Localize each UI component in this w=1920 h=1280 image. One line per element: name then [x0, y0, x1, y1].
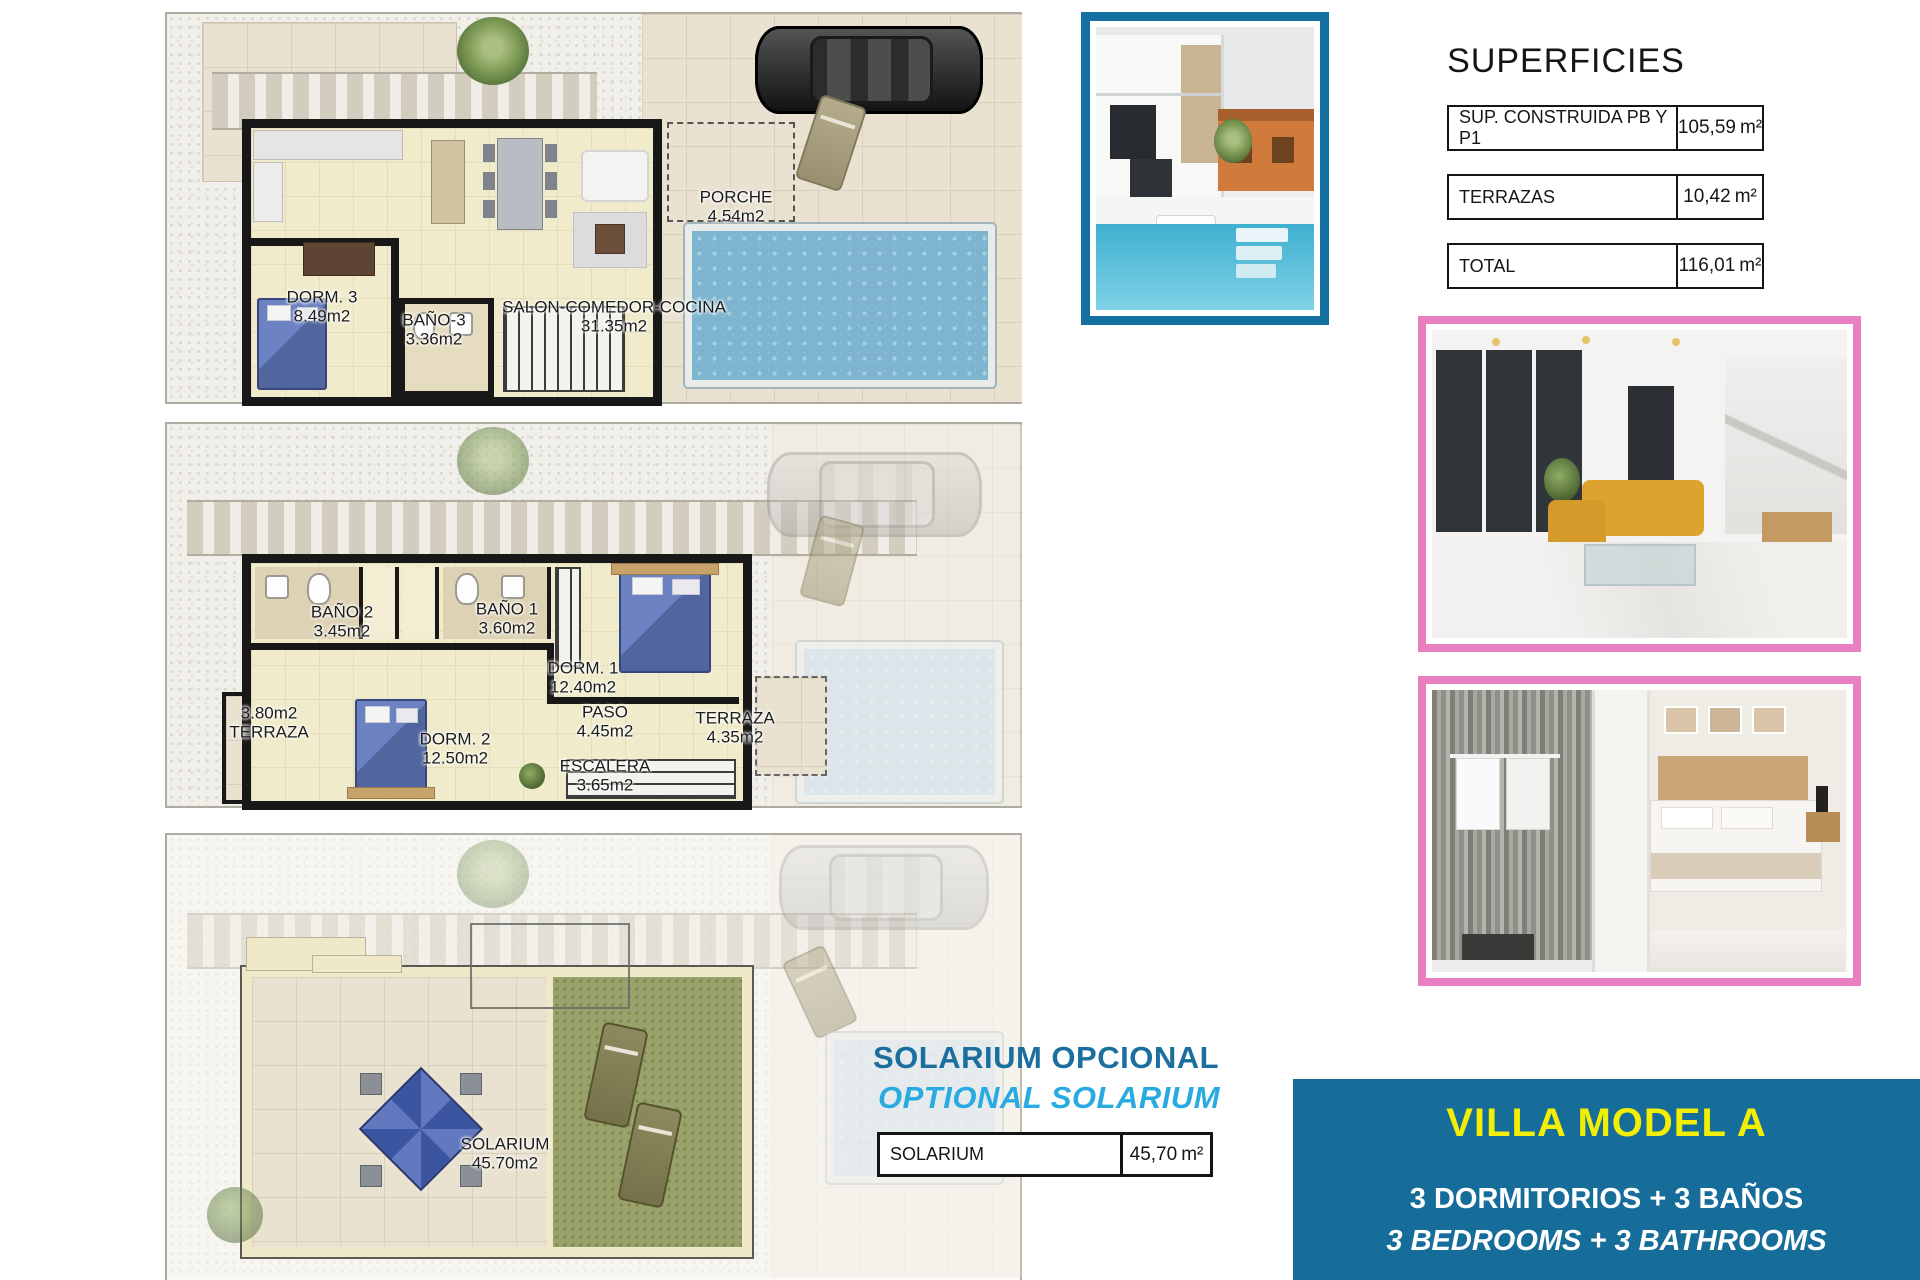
room-area: 8.49m2 [287, 307, 358, 326]
bed-dorm2 [355, 699, 427, 793]
headboard [347, 787, 435, 799]
room-area: 3.80m2 [229, 704, 308, 723]
desk [303, 242, 375, 276]
villa-exterior-photo-content [1096, 27, 1314, 310]
floorplan-first: BAÑO 2 3.45m2 BAÑO 1 3.60m2 DORM. 1 12.4… [165, 422, 1022, 808]
room-name: TERRAZA [229, 723, 308, 742]
superficies-row-construida: SUP. CONSTRUIDA PB Y P1 105,59 m² [1447, 105, 1764, 151]
nightstand [1806, 812, 1840, 842]
dining-chair [483, 200, 495, 218]
sink-icon [501, 575, 525, 599]
ceiling-light [1582, 336, 1590, 344]
room-name: ESCALERA [560, 757, 651, 776]
shower-cell [403, 567, 439, 639]
room-name: TERRAZA [695, 709, 774, 728]
value: 45,70 [1130, 1144, 1178, 1166]
wall-art [1708, 706, 1742, 734]
bed-dorm1 [619, 569, 711, 673]
room-label-porche: PORCHE 4.54m2 [700, 188, 773, 225]
row-label: SUP. CONSTRUIDA PB Y P1 [1449, 107, 1676, 149]
pool-water [1096, 224, 1314, 310]
window [1110, 105, 1156, 159]
room-name: DORM. 3 [287, 288, 358, 307]
bed [1650, 800, 1822, 892]
dining-chair [545, 144, 557, 162]
room-area: 3.45m2 [311, 622, 373, 641]
stair-glass-corner [470, 923, 630, 1009]
car-top-view [755, 26, 983, 114]
palm-tree [457, 427, 529, 495]
room-name: DORM. 2 [420, 730, 491, 749]
pillow [1661, 807, 1713, 829]
lamp [1816, 786, 1828, 812]
row-value: 45,70 m² [1120, 1135, 1210, 1174]
value: 116,01 [1679, 255, 1736, 277]
villa-model-title: VILLA MODEL A [1293, 1101, 1920, 1146]
kitchen-appliances [253, 162, 283, 222]
staircase [1725, 358, 1847, 534]
bathroom-bedroom-photo [1418, 676, 1861, 986]
dining-table [497, 138, 543, 230]
brochure-page: PORCHE 4.54m2 DORM. 3 8.49m2 BAÑO-3 3.36… [0, 0, 1920, 1280]
room-name: BAÑO 1 [476, 600, 538, 619]
floor [1650, 930, 1845, 972]
room-label-bano2: BAÑO 2 3.45m2 [311, 603, 373, 640]
room-area: 31.35m2 [502, 317, 726, 336]
toilet-icon [307, 573, 331, 605]
unit: m² [1739, 255, 1761, 277]
palm-tree [457, 840, 529, 908]
room-name: DORM. 1 [548, 659, 619, 678]
unit: m² [1735, 186, 1757, 208]
house-ground [242, 119, 662, 406]
ceiling-light [1492, 338, 1500, 346]
dining-chair [483, 172, 495, 190]
towel [1506, 758, 1550, 830]
dining-chair [545, 200, 557, 218]
dining-chair [545, 172, 557, 190]
white-villa [1096, 35, 1224, 207]
floor-strip [1432, 960, 1592, 972]
chair [360, 1165, 382, 1187]
ceiling-light [1672, 338, 1680, 346]
room-name: BAÑO-3 [402, 311, 465, 330]
room-area: 45.70m2 [461, 1154, 550, 1173]
villa-model-box: VILLA MODEL A 3 DORMITORIOS + 3 BAÑOS 3 … [1293, 1079, 1920, 1280]
palm-tree [1214, 119, 1252, 163]
room-area: 3.60m2 [476, 619, 538, 638]
superficies-row-terrazas: TERRAZAS 10,42 m² [1447, 174, 1764, 220]
interior-wall [251, 643, 551, 650]
superficies-title: SUPERFICIES [1406, 42, 1726, 81]
room-label-solarium: SOLARIUM 45.70m2 [461, 1135, 550, 1172]
room-label-paso: PASO 4.45m2 [577, 703, 634, 740]
glass-table [1584, 544, 1696, 586]
car-roof [829, 854, 942, 920]
plant [519, 763, 545, 789]
interior-wall [391, 238, 399, 397]
kitchen-counter [253, 130, 403, 160]
superficies-row-total: TOTAL 116,01 m² [1447, 243, 1764, 289]
swimming-pool-faded [797, 642, 1002, 802]
dining-chair [483, 144, 495, 162]
coffee-table [595, 224, 625, 254]
pool-step [1236, 228, 1288, 242]
room-name: SALON-COMEDOR-COCINA [502, 298, 726, 317]
row-label: TOTAL [1449, 245, 1676, 287]
car-top-view [767, 452, 982, 537]
villa-line-en: 3 BEDROOMS + 3 BATHROOMS [1293, 1225, 1920, 1258]
green-roof [547, 977, 742, 1247]
kitchen-island [431, 140, 465, 224]
tile-wall [1432, 690, 1592, 972]
solarium-table-row: SOLARIUM 45,70 m² [877, 1132, 1213, 1177]
room-label-dorm1: DORM. 1 12.40m2 [548, 659, 619, 696]
wall-art [1752, 706, 1786, 734]
row-value: 116,01 m² [1676, 245, 1762, 287]
bath-mat [1462, 934, 1534, 960]
villa-line-es: 3 DORMITORIOS + 3 BAÑOS [1293, 1183, 1920, 1216]
bed-throw [1651, 853, 1821, 879]
room-name: PASO [577, 703, 634, 722]
floorplan-ground: PORCHE 4.54m2 DORM. 3 8.49m2 BAÑO-3 3.36… [165, 12, 1022, 404]
wall-art [1664, 706, 1698, 734]
sofa [581, 150, 649, 202]
solarium-title-es: SOLARIUM OPCIONAL [873, 1040, 1219, 1076]
sink-icon [265, 575, 289, 599]
room-label-terraza-left: 3.80m2 TERRAZA [229, 704, 308, 741]
solarium-structure [242, 967, 752, 1257]
bedroom [1650, 690, 1845, 972]
solarium-title-en: OPTIONAL SOLARIUM [878, 1080, 1220, 1116]
chair [460, 1073, 482, 1095]
villa-exterior-photo [1081, 12, 1329, 325]
unit: m² [1740, 117, 1762, 139]
room-area: 3.65m2 [560, 776, 651, 795]
room-name: PORCHE [700, 188, 773, 207]
room-name: SOLARIUM [461, 1135, 550, 1154]
house-first [242, 554, 752, 810]
room-label-terraza-right: TERRAZA 4.35m2 [695, 709, 774, 746]
room-label-dorm2: DORM. 2 12.50m2 [420, 730, 491, 767]
palm-tree [457, 17, 529, 85]
row-value: 10,42 m² [1676, 176, 1762, 218]
balcony-rail [1096, 93, 1221, 96]
living-room-photo-content [1432, 330, 1847, 638]
room-label-bano3: BAÑO-3 3.36m2 [402, 311, 465, 348]
bed-headboard [1658, 756, 1808, 802]
pool-step [1236, 246, 1282, 260]
pool-step [1236, 264, 1276, 278]
row-label: SOLARIUM [880, 1135, 1120, 1174]
tv-cabinet [1762, 512, 1832, 546]
towel [1456, 758, 1500, 830]
door-frame [1592, 690, 1650, 972]
room-label-dorm3: DORM. 3 8.49m2 [287, 288, 358, 325]
headboard [611, 563, 719, 575]
room-label-escalera: ESCALERA 3.65m2 [560, 757, 651, 794]
chair [360, 1073, 382, 1095]
room-label-salon: SALON-COMEDOR-COCINA 31.35m2 [502, 298, 726, 335]
plant [1544, 458, 1580, 502]
pillow [1721, 807, 1773, 829]
solarium-step [312, 955, 402, 973]
room-area: 3.36m2 [402, 330, 465, 349]
living-room-photo [1418, 316, 1861, 652]
value: 10,42 [1683, 186, 1731, 208]
room-label-bano1: BAÑO 1 3.60m2 [476, 600, 538, 637]
car-roof [810, 36, 933, 105]
unit: m² [1181, 1144, 1203, 1166]
room-area: 4.54m2 [700, 207, 773, 226]
window [1272, 137, 1294, 163]
room-area: 4.35m2 [695, 728, 774, 747]
row-label: TERRAZAS [1449, 176, 1676, 218]
swimming-pool [685, 224, 995, 387]
bathroom-bedroom-photo-content [1432, 690, 1847, 972]
room-area: 4.45m2 [577, 722, 634, 741]
room-name: BAÑO 2 [311, 603, 373, 622]
room-area: 12.40m2 [548, 678, 619, 697]
plant [207, 1187, 263, 1243]
closet-hatch [555, 567, 581, 667]
row-value: 105,59 m² [1676, 107, 1762, 149]
value: 105,59 [1678, 117, 1736, 139]
room-area: 12.50m2 [420, 749, 491, 768]
car-top-view [779, 845, 989, 930]
